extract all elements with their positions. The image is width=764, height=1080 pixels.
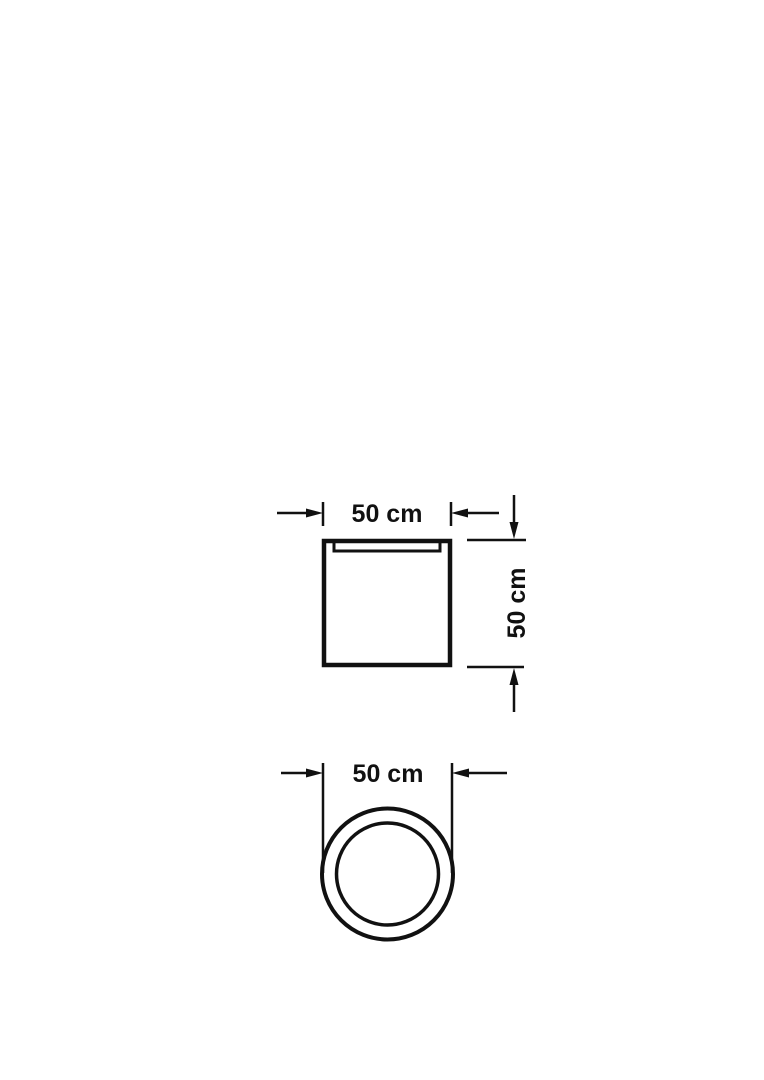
top-view: [322, 809, 453, 940]
cylinder-top-outer-circle: [322, 809, 453, 940]
right-pointing-arrowhead-icon: [306, 769, 323, 778]
left-pointing-arrowhead-icon: [451, 509, 468, 518]
top-diameter-dimension: 50 cm: [281, 760, 507, 873]
up-pointing-arrowhead-icon: [510, 668, 519, 685]
drawing-canvas: 50 cm 50 cm: [0, 0, 764, 1080]
cylinder-side-outline: [324, 541, 450, 665]
cylinder-top-inner-circle: [337, 823, 439, 925]
front-view: [324, 541, 450, 665]
cylinder-rim-inner-edge: [334, 543, 440, 551]
down-pointing-arrowhead-icon: [510, 522, 519, 539]
cylinder-dimension-drawing: 50 cm 50 cm: [0, 0, 764, 1080]
top-diameter-label: 50 cm: [353, 760, 424, 788]
left-pointing-arrowhead-icon: [452, 769, 469, 778]
front-width-label: 50 cm: [352, 500, 423, 528]
front-height-dimension: 50 cm: [467, 495, 531, 712]
right-pointing-arrowhead-icon: [306, 509, 323, 518]
front-height-label: 50 cm: [503, 568, 531, 639]
front-width-dimension: 50 cm: [277, 500, 499, 528]
